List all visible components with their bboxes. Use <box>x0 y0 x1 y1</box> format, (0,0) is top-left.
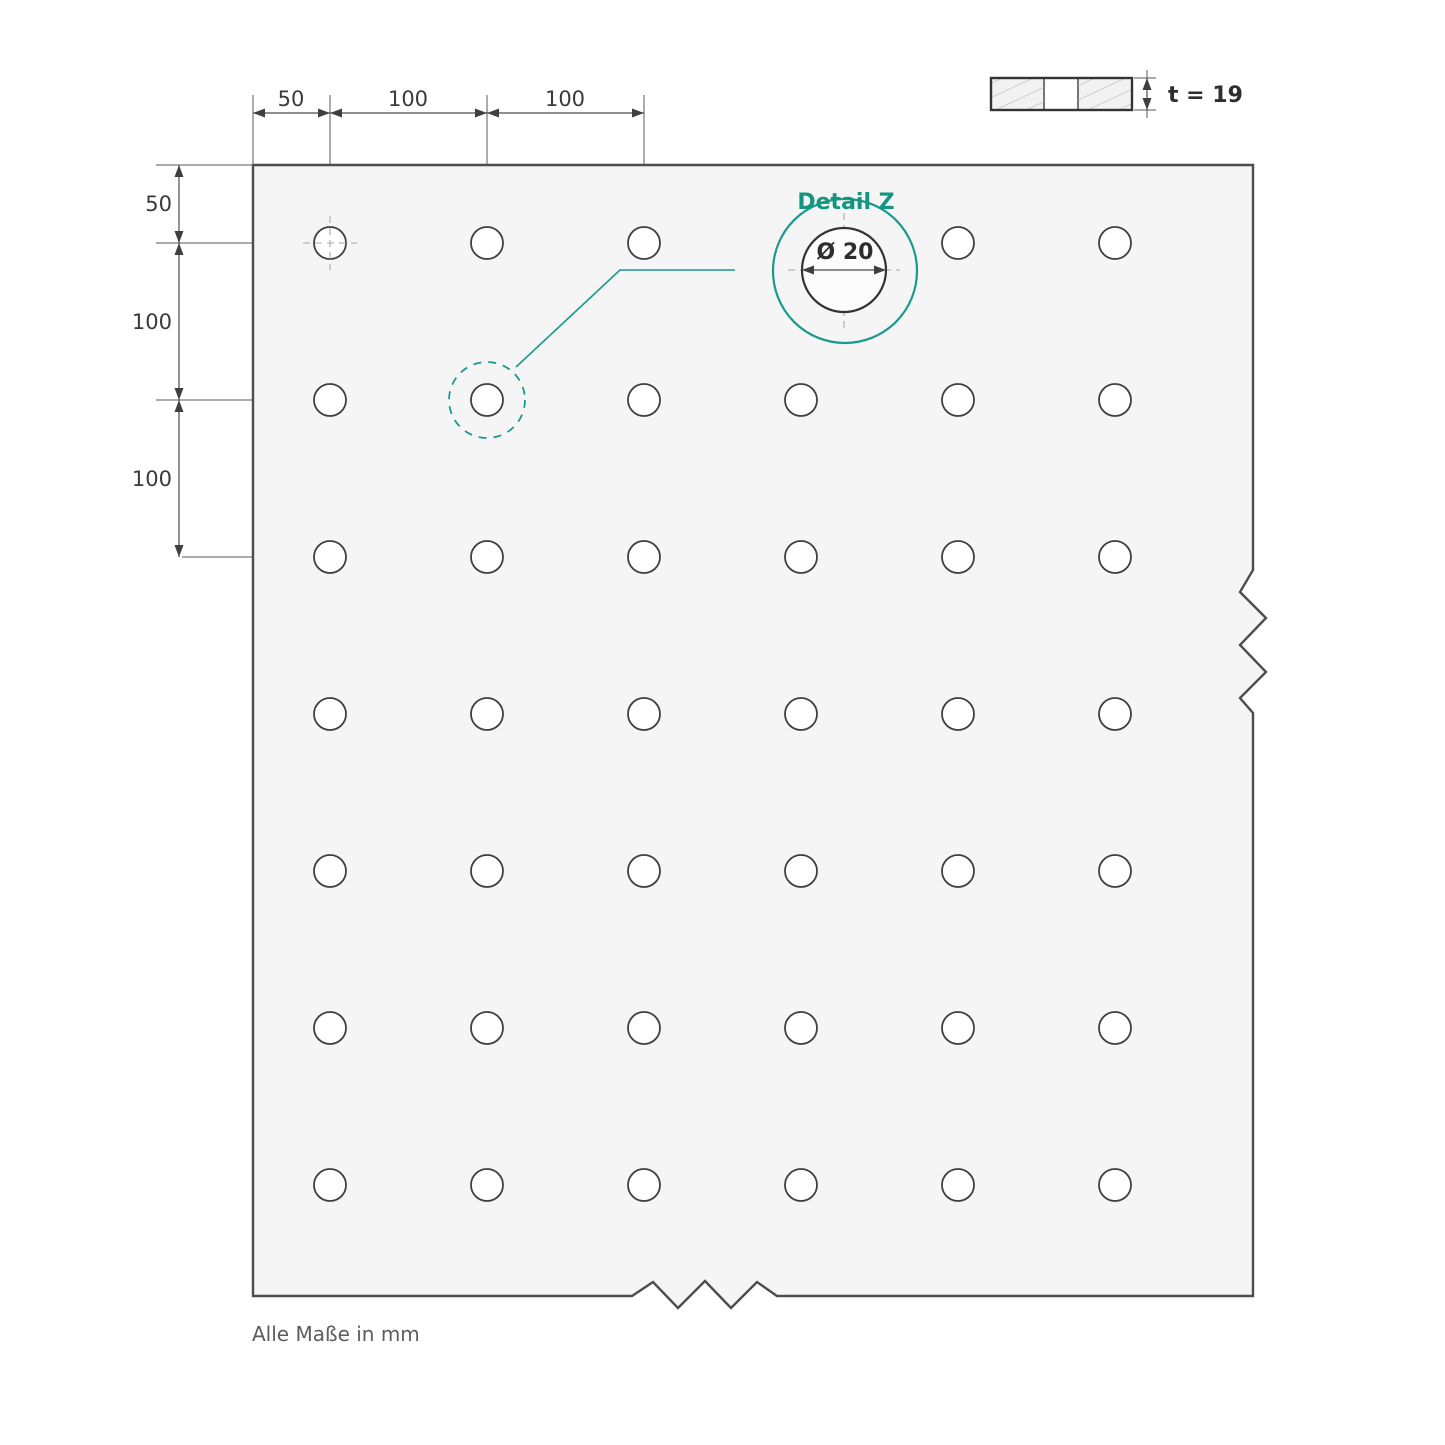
hole <box>785 384 817 416</box>
hole <box>471 384 503 416</box>
hole <box>785 1169 817 1201</box>
thickness-label: t = 19 <box>1168 83 1243 108</box>
hole <box>628 1012 660 1044</box>
plate-outline <box>253 165 1266 1308</box>
dim-top-100b: 100 <box>545 87 585 111</box>
hole <box>1099 698 1131 730</box>
dim-left-50: 50 <box>145 192 172 216</box>
hole <box>1099 855 1131 887</box>
detail-title: Detail Z <box>797 190 894 215</box>
hole <box>314 1012 346 1044</box>
dim-top-50: 50 <box>278 87 305 111</box>
hole <box>471 855 503 887</box>
units-note: Alle Maße in mm <box>252 1322 420 1346</box>
hole <box>471 541 503 573</box>
hole <box>942 698 974 730</box>
hole <box>628 227 660 259</box>
hole <box>1099 541 1131 573</box>
hole <box>471 1012 503 1044</box>
section-hatch-right <box>1078 78 1132 110</box>
hole <box>314 541 346 573</box>
hole <box>628 855 660 887</box>
dim-top-100a: 100 <box>388 87 428 111</box>
section-view: t = 19 <box>991 70 1243 118</box>
hole <box>628 1169 660 1201</box>
detail-diameter-label: Ø 20 <box>817 240 874 265</box>
hole <box>628 384 660 416</box>
hole <box>628 541 660 573</box>
hole <box>942 227 974 259</box>
top-dimension-chain: 50 100 100 <box>253 87 644 165</box>
section-hatch-left <box>991 78 1044 110</box>
dim-left-100a: 100 <box>132 310 172 334</box>
hole <box>785 1012 817 1044</box>
dim-left-100b: 100 <box>132 467 172 491</box>
hole <box>314 855 346 887</box>
hole <box>471 227 503 259</box>
hole <box>471 698 503 730</box>
hole <box>785 698 817 730</box>
hole <box>785 541 817 573</box>
hole <box>1099 1012 1131 1044</box>
drawing-canvas: 50 100 100 50 100 100 Ø 20 Detail Z <box>0 0 1445 1445</box>
hole <box>942 384 974 416</box>
technical-drawing: 50 100 100 50 100 100 Ø 20 Detail Z <box>0 0 1445 1445</box>
hole <box>942 855 974 887</box>
hole <box>314 698 346 730</box>
hole <box>471 1169 503 1201</box>
hole <box>1099 384 1131 416</box>
hole <box>314 1169 346 1201</box>
hole <box>628 698 660 730</box>
hole <box>314 384 346 416</box>
hole <box>785 855 817 887</box>
left-dimension-chain: 50 100 100 <box>132 165 253 557</box>
hole <box>942 541 974 573</box>
hole <box>942 1012 974 1044</box>
hole <box>1099 1169 1131 1201</box>
hole <box>1099 227 1131 259</box>
hole <box>942 1169 974 1201</box>
